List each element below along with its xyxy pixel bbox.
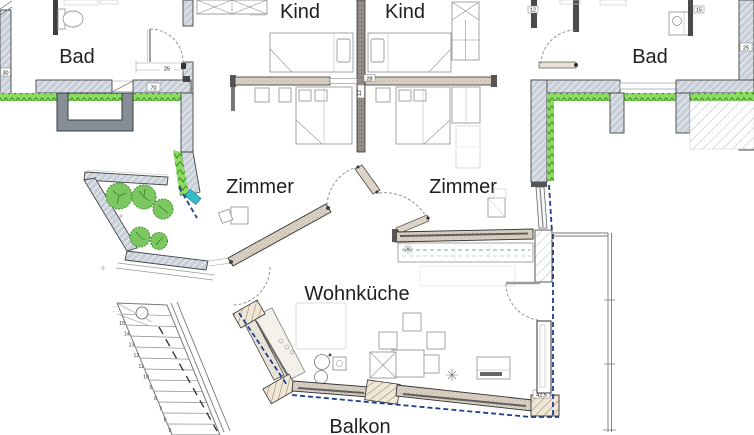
stair-step-number: 14 <box>124 332 130 338</box>
nightstand-icon <box>279 88 291 102</box>
room-label-kind-right: Kind <box>385 1 425 23</box>
dim-left-wall: 30 <box>2 71 8 77</box>
table-icon <box>392 350 424 377</box>
plant-icon <box>446 369 458 381</box>
pillow-icon <box>299 90 311 101</box>
room-label-kind-left: Kind <box>280 1 320 23</box>
dim-right-wall: 25 <box>743 46 749 52</box>
right-apartment: 12 15 25 Bad <box>528 0 754 228</box>
stair-step-number: 12 <box>133 353 139 359</box>
wall-opening <box>330 79 357 84</box>
sideboard-icon <box>398 243 533 262</box>
tree-icon <box>151 233 168 250</box>
chair-icon <box>379 332 397 349</box>
pillow-icon <box>337 39 350 62</box>
kind-right-room: Kind <box>368 1 479 72</box>
wall-west <box>531 80 547 182</box>
window-wall-south-2 <box>396 385 533 411</box>
dim-hall: 25 <box>164 67 170 73</box>
kitchen-sink-icon <box>315 354 332 384</box>
desk-icon <box>231 207 248 224</box>
wall-stub <box>53 0 58 35</box>
dim-center-a: 28 <box>366 77 372 83</box>
wall-pier-doors <box>355 165 380 194</box>
stair-step-number: 8 <box>154 396 157 402</box>
pillow-icon <box>414 90 426 101</box>
dim-center-b: 12 <box>357 90 363 96</box>
insulation-strip-vertical <box>547 93 554 181</box>
rug-outline <box>420 266 515 286</box>
wohnkueche-room: Pos. 40 Wohnküche <box>250 283 510 384</box>
wall-horizontal-right <box>365 77 492 85</box>
wall-pier <box>535 230 552 282</box>
toilet-bowl-icon <box>63 11 83 27</box>
kind-left-room: Kind <box>197 0 353 72</box>
wall-band <box>537 321 551 393</box>
fixture-cutoff <box>100 0 118 4</box>
door-arc <box>541 30 576 64</box>
dim-lines <box>136 60 183 73</box>
sideboard-right-icon <box>477 357 510 379</box>
appliance-icon <box>370 352 396 378</box>
door-arc <box>379 193 428 220</box>
stair-step-number: 9 <box>149 385 152 391</box>
chair-icon <box>427 332 445 349</box>
railing-right <box>608 233 612 432</box>
wall-vertical-band <box>181 93 193 153</box>
room-label-zimmer-left: Zimmer <box>226 176 294 198</box>
plant-icon <box>403 244 413 254</box>
stove-icon <box>333 357 346 370</box>
room-label-bad-left: Bad <box>59 46 95 68</box>
door-arc <box>327 167 357 205</box>
nightstand-icon <box>376 88 390 102</box>
fixture-cutoff <box>600 0 626 5</box>
dim-door: 70 <box>150 86 156 92</box>
wall-pier <box>573 0 579 32</box>
zimmer-right-room: Zimmer <box>376 87 506 217</box>
floor-plan-page: 30 25 70 Bad <box>0 0 754 435</box>
door-threshold <box>620 83 676 89</box>
dim-entry: 12 <box>530 8 536 14</box>
zimmer-right-south <box>392 229 533 286</box>
terrace-door-threshold <box>208 258 231 266</box>
railing-ticks <box>603 300 616 430</box>
door-arc <box>506 284 538 320</box>
dim-corner: 15 <box>696 8 702 14</box>
newel-post-icon <box>136 307 148 319</box>
stair-step-number: 11 <box>138 364 144 370</box>
floor-plan-drawing: 30 25 70 Bad <box>0 0 754 435</box>
tree-icon <box>130 227 150 247</box>
room-label-bad-right: Bad <box>632 46 668 68</box>
chair-icon <box>423 355 439 373</box>
door-leaf <box>539 62 576 68</box>
railing-top <box>553 233 608 236</box>
wall-left-outer <box>0 10 11 95</box>
zimmer-left-room: Zimmer <box>219 87 352 224</box>
pillow-icon <box>399 90 411 101</box>
chair-icon <box>403 313 421 331</box>
room-label-balkon: Balkon <box>329 416 390 435</box>
insulation-strip <box>553 93 610 101</box>
door-arc <box>150 29 183 62</box>
pillow-icon <box>371 39 384 62</box>
wall-pier <box>531 0 537 28</box>
insulation-strip-left <box>0 93 193 101</box>
room-label-wohnkueche: Wohnküche <box>304 283 409 305</box>
wall-pier <box>610 93 624 133</box>
washbasin-cutoff <box>64 0 98 5</box>
terrace-wall-south <box>125 251 208 270</box>
balcony-railing <box>553 233 616 432</box>
wall-pier <box>183 0 193 26</box>
nightstand-icon <box>255 88 269 102</box>
tree-icon <box>106 183 132 209</box>
door-arc-terrace <box>232 267 270 305</box>
wall-bad-south-2 <box>133 80 191 93</box>
stair-step-number: 13 <box>129 342 135 348</box>
wall-stub-zimmer-left <box>231 87 235 111</box>
wall-bad-south-2 <box>676 80 754 93</box>
tree-icon <box>153 199 173 219</box>
door-leaf-diagonal <box>112 81 133 92</box>
left-bathroom: 30 25 70 Bad <box>0 0 193 131</box>
stair-step-number: 15 <box>119 321 125 327</box>
insulation-strip <box>624 93 676 101</box>
stair-step-number: 7 <box>159 407 162 413</box>
tree-icon <box>132 185 156 209</box>
kitchen-block-outline <box>296 303 346 349</box>
pier-icon <box>365 380 400 404</box>
pillow-icon <box>315 90 327 101</box>
wall-stub <box>688 0 693 36</box>
room-label-zimmer-right: Zimmer <box>429 176 497 198</box>
stair-step-number: 10 <box>143 375 149 381</box>
stair-step-number: 5 <box>168 428 171 434</box>
wall-pier <box>676 93 690 133</box>
exterior-hatch-area <box>690 101 754 149</box>
staircase: 15141312111098765 <box>112 302 230 435</box>
stair-step-number: 6 <box>164 417 167 423</box>
wall-horizontal-left <box>235 77 330 85</box>
wall-bad-south-1 <box>36 80 112 93</box>
